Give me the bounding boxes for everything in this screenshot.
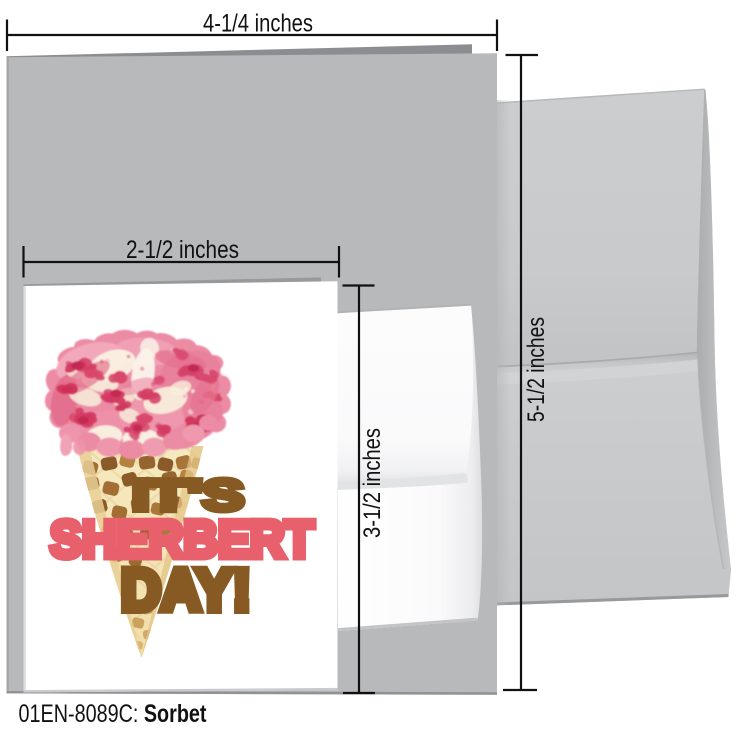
svg-text:DAY!: DAY! <box>121 558 251 623</box>
svg-text:2-1/2 inches: 2-1/2 inches <box>126 236 239 264</box>
svg-text:01EN-8089C: Sorbet: 01EN-8089C: Sorbet <box>19 700 208 728</box>
svg-text:5-1/2 inches: 5-1/2 inches <box>523 317 550 422</box>
svg-text:3-1/2 inches: 3-1/2 inches <box>359 428 386 538</box>
svg-text:4-1/4 inches: 4-1/4 inches <box>203 10 313 38</box>
